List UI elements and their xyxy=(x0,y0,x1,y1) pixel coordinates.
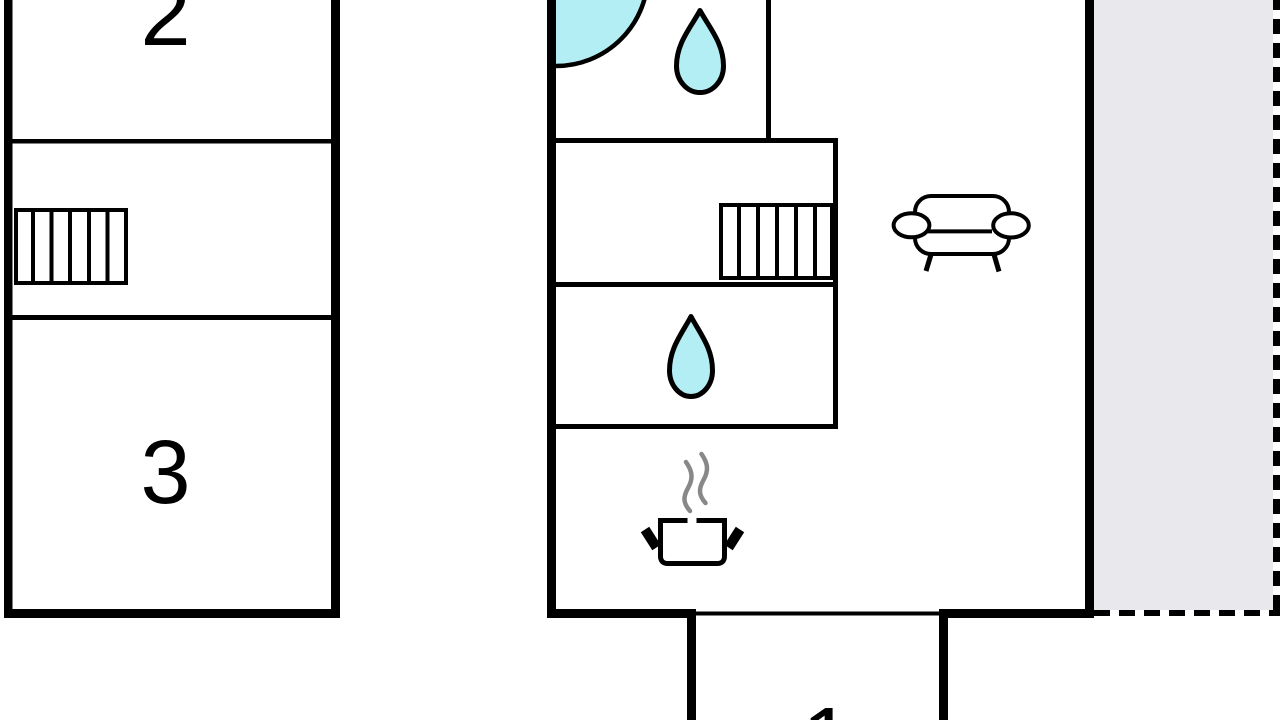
svg-text:1: 1 xyxy=(802,690,852,720)
svg-text:3: 3 xyxy=(140,423,190,523)
svg-text:2: 2 xyxy=(140,0,190,65)
